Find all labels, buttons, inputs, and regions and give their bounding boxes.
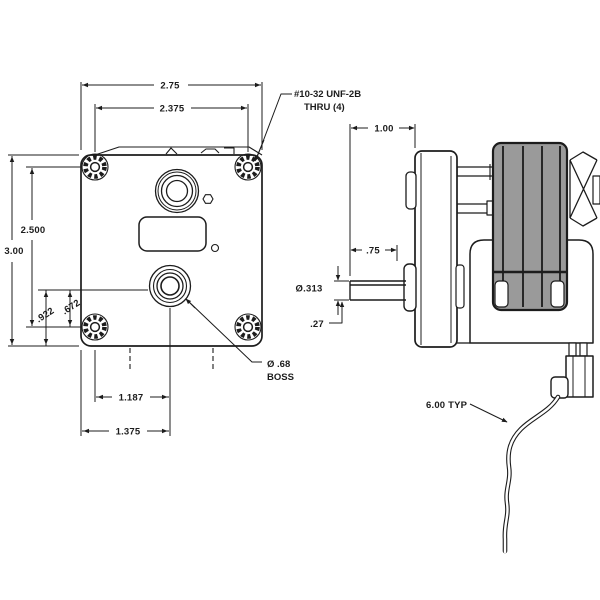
thread-callout-line2: THRU (4) <box>304 102 345 113</box>
dim-shaft-flat-label: .27 <box>310 319 324 330</box>
stack-corner-clip-left <box>495 281 508 307</box>
boss-callout-line2: BOSS <box>267 372 294 383</box>
mounting-screw-bottom-left <box>82 314 108 340</box>
power-lead-inner <box>505 397 558 552</box>
rear-bearing-bump <box>456 265 464 308</box>
thread-callout-leader <box>256 94 292 160</box>
dim-overall-width-label: 2.75 <box>160 81 180 92</box>
mounting-screw-top-left <box>82 154 108 180</box>
terminal-block <box>566 356 593 397</box>
dim-shaft-tip-to-face-label: 1.00 <box>374 124 393 135</box>
dim-lead-length-label: 6.00 TYP <box>426 400 468 411</box>
dim-boss-to-hole-label: .672 <box>60 298 82 318</box>
dim-shaft-exposed-label: .75 <box>366 246 380 257</box>
side-view <box>350 143 600 552</box>
motor-through-bolt-upper <box>457 167 497 176</box>
nameplate-recess <box>139 217 206 251</box>
stack-corner-clip-right <box>551 281 564 307</box>
dim-shaft-diameter-label: Ø.313 <box>296 284 323 295</box>
dimension-lines <box>12 85 261 431</box>
dim-boss-to-bottom-label: .922 <box>34 306 56 326</box>
dimension-arrows <box>12 85 260 431</box>
motor-silhouette-line <box>95 147 262 155</box>
hex-feature <box>203 195 213 204</box>
front-view-dimensions <box>8 82 292 436</box>
boss-callout-line1: Ø .68 <box>267 359 290 370</box>
bottom-terminal-centerlines <box>130 348 213 372</box>
extension-lines-side <box>334 124 415 300</box>
dim-hole-span-h-label: 2.375 <box>160 104 185 115</box>
dim-boss-offset-hole-label: 1.187 <box>119 393 144 404</box>
dimension-lines-side <box>329 128 414 323</box>
dim-hole-span-v-label: 2.500 <box>21 225 46 236</box>
front-boss-side <box>404 264 416 311</box>
output-shaft <box>350 281 406 300</box>
extension-lines <box>8 82 262 436</box>
front-tab-upper <box>406 172 416 209</box>
dim-overall-height-label: 3.00 <box>4 246 23 257</box>
output-shaft-boss <box>150 266 191 307</box>
technical-drawing: 2.75 2.375 3.00 2.500 .922 .672 1.187 1.… <box>0 0 600 600</box>
terminal-prong-right <box>580 343 587 356</box>
front-view-labels: 2.75 2.375 3.00 2.500 .922 .672 1.187 1.… <box>4 81 361 438</box>
dim-boss-offset-edge-label: 1.375 <box>116 427 141 438</box>
thread-callout-line1: #10-32 UNF-2B <box>294 89 361 100</box>
terminal-prong-left <box>569 343 576 356</box>
small-hole <box>212 245 219 252</box>
lead-connector <box>551 377 568 398</box>
upper-bearing-hub <box>156 170 199 213</box>
fan-impeller <box>570 152 600 226</box>
front-view <box>81 147 262 372</box>
gearmotor-dimension-drawing: 2.75 2.375 3.00 2.500 .922 .672 1.187 1.… <box>0 0 600 600</box>
mounting-screw-bottom-right <box>235 314 261 340</box>
boss-callout-arrow <box>186 299 195 308</box>
